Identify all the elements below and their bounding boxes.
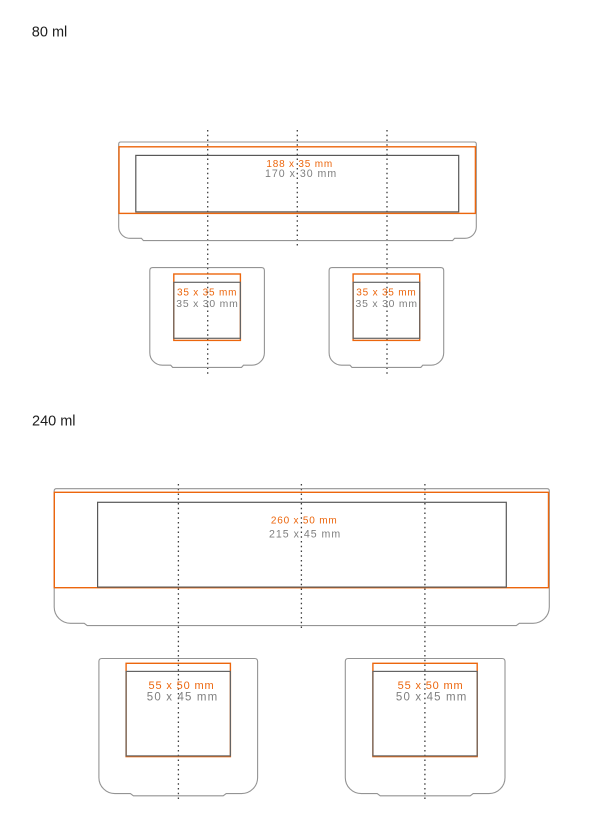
svg-text:35 x 35 mm: 35 x 35 mm bbox=[356, 287, 416, 298]
svg-text:35 x 35 mm: 35 x 35 mm bbox=[177, 287, 237, 298]
svg-text:55 x 50 mm: 55 x 50 mm bbox=[149, 680, 215, 692]
svg-text:50 x 45 mm: 50 x 45 mm bbox=[396, 691, 468, 703]
svg-text:35 x 30 mm: 35 x 30 mm bbox=[176, 299, 238, 310]
svg-text:215 x 45 mm: 215 x 45 mm bbox=[269, 528, 341, 540]
svg-text:55 x 50 mm: 55 x 50 mm bbox=[398, 680, 464, 692]
svg-text:50 x 45 mm: 50 x 45 mm bbox=[147, 691, 219, 703]
svg-text:35 x 30 mm: 35 x 30 mm bbox=[356, 299, 418, 310]
svg-text:240 ml: 240 ml bbox=[32, 414, 76, 430]
svg-text:80 ml: 80 ml bbox=[32, 24, 67, 40]
svg-text:260 x 50 mm: 260 x 50 mm bbox=[271, 515, 338, 526]
svg-text:170 x 30 mm: 170 x 30 mm bbox=[265, 168, 337, 180]
